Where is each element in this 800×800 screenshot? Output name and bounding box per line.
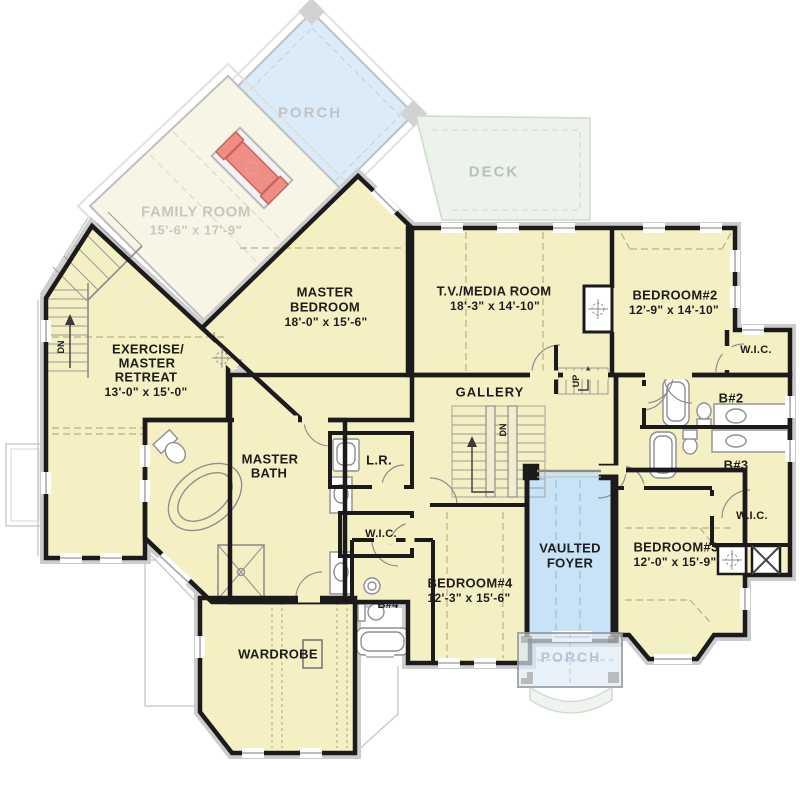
label-exercise-1: EXERCISE/ <box>112 342 184 357</box>
label-family-room: FAMILY ROOM <box>141 204 251 221</box>
label-exercise-2: MASTER <box>119 356 176 371</box>
label-vaulted-foyer-1: VAULTED <box>539 541 601 556</box>
label-master-bedroom-1: MASTER <box>297 285 354 300</box>
label-master-bedroom-2: BEDROOM <box>290 300 360 315</box>
label-family-room-dims: 15'-6" x 17'-9" <box>150 223 243 238</box>
labels-layer: PORCH FAMILY ROOM 15'-6" x 17'-9" DECK M… <box>0 0 800 800</box>
label-wic-lower-right: W.I.C. <box>736 510 768 522</box>
label-bath2: B#2 <box>719 391 744 406</box>
label-bedroom2: BEDROOM#2 <box>632 288 717 303</box>
label-stairs-dn-left: DN <box>56 341 66 354</box>
label-vaulted-foyer-2: FOYER <box>547 556 593 571</box>
label-bedroom4: BEDROOM#4 <box>427 576 512 591</box>
floor-plan-page: PORCH FAMILY ROOM 15'-6" x 17'-9" DECK M… <box>0 0 800 800</box>
label-bedroom3-dims: 12'-0" x 15'-9" <box>634 555 717 569</box>
label-laundry: L.R. <box>366 453 392 468</box>
label-stairs-up: UP <box>571 375 581 388</box>
label-bedroom4-dims: 12'-3" x 15'-6" <box>428 591 511 605</box>
label-bedroom3: BEDROOM#3 <box>633 540 718 555</box>
label-wic-mid: W.I.C. <box>365 528 397 540</box>
label-deck: DECK <box>469 164 520 181</box>
label-master-bath-1: MASTER <box>242 452 299 467</box>
label-wic-top-right: W.I.C. <box>740 344 772 356</box>
label-exercise-3: RETREAT <box>115 370 178 385</box>
label-master-bath-2: BATH <box>251 466 287 481</box>
label-master-bedroom-dims: 18'-0" x 15'-6" <box>285 315 368 329</box>
label-wardrobe: WARDROBE <box>238 647 318 662</box>
label-gallery: GALLERY <box>456 385 525 400</box>
label-porch-bottom: PORCH <box>541 649 602 665</box>
label-bath3: B#3 <box>724 458 749 473</box>
label-stairs-dn-center: DN <box>498 424 508 437</box>
label-bath4: B#4 <box>377 599 398 611</box>
label-porch-top: PORCH <box>278 105 342 122</box>
label-bedroom2-dims: 12'-9" x 14'-10" <box>629 303 719 317</box>
label-exercise-dims: 13'-0" x 15'-0" <box>105 385 188 399</box>
label-tv-media-room: T.V./MEDIA ROOM <box>437 284 552 299</box>
label-tv-media-room-dims: 18'-3" x 14'-10" <box>450 299 540 313</box>
